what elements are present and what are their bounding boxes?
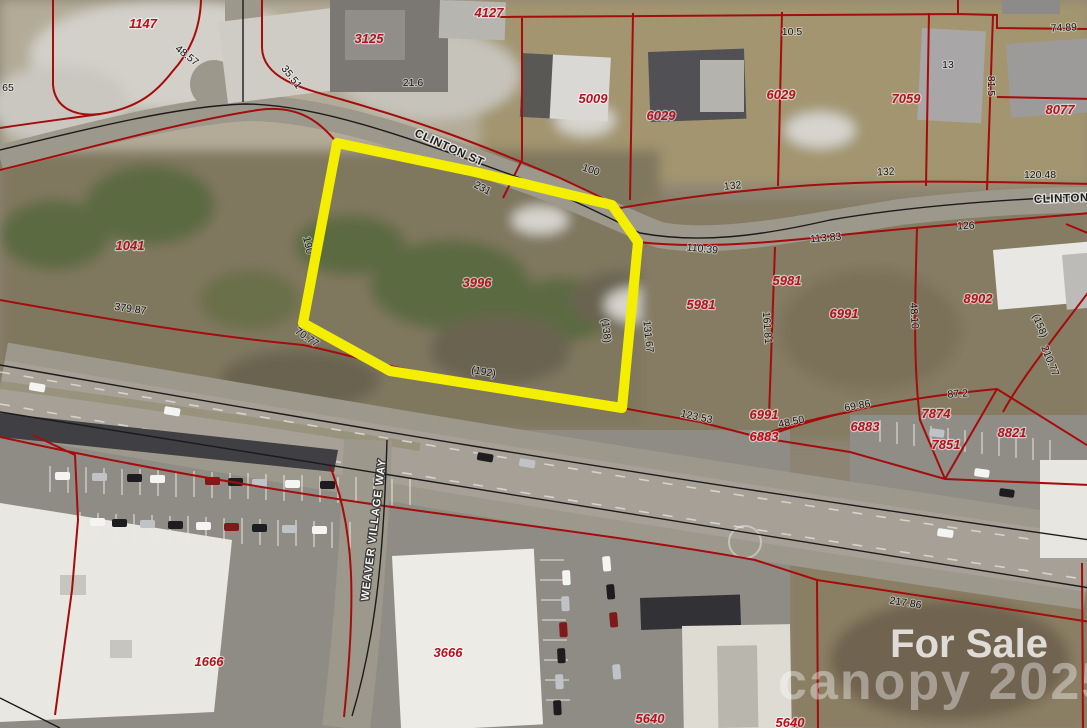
building bbox=[520, 53, 553, 118]
parcel-id-label: 5640 bbox=[776, 715, 806, 728]
parcel-id-label: 5640 bbox=[636, 711, 666, 726]
dimension-label: 132 bbox=[723, 179, 742, 193]
building bbox=[1002, 0, 1060, 14]
parcel-id-label: 3125 bbox=[355, 31, 385, 46]
dimension-label: 21.6 bbox=[403, 77, 424, 89]
dimension-label: 48.10 bbox=[907, 302, 921, 329]
parcel-id-label: 6991 bbox=[830, 306, 859, 321]
parcel-id-label: 6883 bbox=[750, 429, 780, 444]
parcel-id-label: 7874 bbox=[922, 406, 952, 421]
building bbox=[640, 595, 741, 630]
parcel-id-label: 5981 bbox=[773, 273, 802, 288]
parcel-id-label: 6883 bbox=[851, 419, 881, 434]
parcel-id-label: 1041 bbox=[116, 238, 145, 253]
parcel-id-label: 7851 bbox=[932, 437, 961, 452]
dimension-label: (138) bbox=[599, 318, 613, 344]
parcel-id-label: 8902 bbox=[964, 291, 994, 306]
building bbox=[700, 60, 744, 112]
parcel-id-label: 6991 bbox=[750, 407, 779, 422]
parcel-id-label: 6029 bbox=[647, 108, 677, 123]
parcel-id-label: 8821 bbox=[998, 425, 1027, 440]
parcel-id-label: 8077 bbox=[1046, 102, 1076, 117]
parcel-id-label: 1147 bbox=[129, 16, 158, 31]
dimension-label: 65 bbox=[2, 82, 14, 94]
dimension-label: 161.81 bbox=[760, 311, 774, 344]
parcel-id-label: 1666 bbox=[195, 654, 225, 669]
rooftop-unit bbox=[110, 640, 132, 658]
building bbox=[392, 549, 543, 728]
street-label-clinton-east: CLINTON bbox=[1034, 192, 1087, 206]
parcel-id-label: 6029 bbox=[767, 87, 797, 102]
dimension-label: 81.5 bbox=[985, 76, 997, 97]
dimension-label: 126 bbox=[957, 220, 975, 233]
dimension-label: 87.2 bbox=[947, 387, 968, 400]
building bbox=[1040, 460, 1087, 558]
parcel-id-label: 5009 bbox=[579, 91, 609, 106]
building bbox=[717, 645, 758, 728]
parcel-id-label: 7059 bbox=[892, 91, 922, 106]
parcel-id-label: 5981 bbox=[687, 297, 716, 312]
dimension-label: 132 bbox=[877, 166, 895, 179]
brand-watermark: canopy 2025 bbox=[778, 653, 1087, 711]
featured-parcel-id-label: 3996 bbox=[463, 275, 493, 290]
parcel-id-label: 3666 bbox=[434, 645, 464, 660]
dimension-label: 74.89 bbox=[1050, 21, 1077, 34]
dimension-label: 10.5 bbox=[782, 26, 803, 38]
dimension-label: 13 bbox=[942, 59, 954, 71]
parcel-id-label: 4127 bbox=[474, 5, 505, 20]
aerial-parcel-map: 48.57 35.51 21.6 65 10.5 13 74.89 81.5 1… bbox=[0, 0, 1087, 728]
dimension-label: 120.48 bbox=[1024, 169, 1056, 181]
